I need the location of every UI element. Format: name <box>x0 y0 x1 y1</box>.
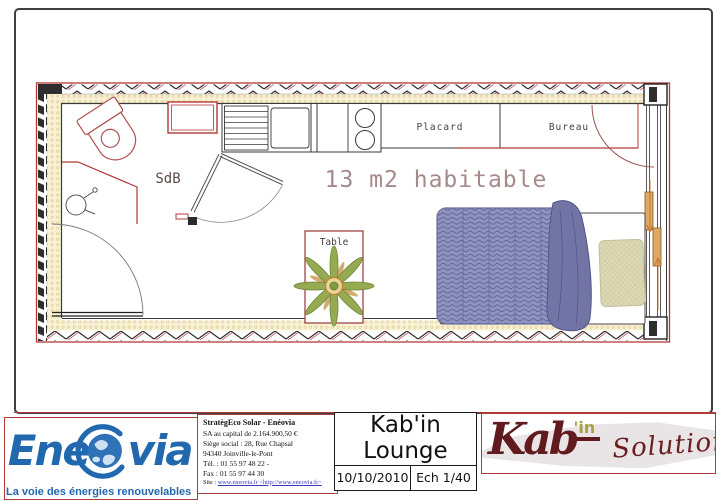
eneovia-logo-post: via <box>128 426 192 475</box>
site-label: Site : <box>203 479 218 486</box>
company-address2: 94340 Joinville-le-Pont <box>203 449 337 459</box>
project-title: Kab'in Lounge <box>335 413 476 465</box>
room-label-placard: Placard <box>416 122 463 133</box>
glazed-facade <box>644 84 667 341</box>
toilet <box>76 96 145 168</box>
wall-left <box>38 84 62 341</box>
project-title-box: Kab'in Lounge 10/10/2010 Ech 1/40 <box>334 412 477 491</box>
kabin-solutions-logo: Kab 'in Solutions <box>488 414 716 472</box>
room-label-bureau: Bureau <box>549 122 589 133</box>
hob-burner <box>356 109 375 128</box>
kabin-logo-in: 'in <box>573 418 601 441</box>
kabin-logo-solutions: Solutions <box>612 425 716 464</box>
company-info-box: StratègEco Solar - Enéovia SA au capital… <box>197 414 338 494</box>
hob-burner <box>356 131 375 150</box>
window-frame-post <box>645 192 653 230</box>
eneovia-tagline: La voie des énergies renouvelables <box>6 486 196 498</box>
bathroom-door <box>191 154 283 223</box>
plant <box>294 246 374 326</box>
bed <box>437 201 645 331</box>
project-title-line2: Lounge <box>363 439 447 465</box>
scale-value: Ech 1/40 <box>410 466 476 491</box>
kabin-solutions-logo-box: Kab 'in Solutions <box>481 413 716 474</box>
company-name: StratègEco Solar - Enéovia <box>203 418 337 429</box>
site-link[interactable]: www.eneovia.fr <http://www.eneovia.fr> <box>218 479 322 486</box>
door-stop <box>188 217 197 225</box>
drawing-sheet: Placard Bureau SdB <box>0 0 720 501</box>
eneovia-logo-box: Ene via La voie des énergies renouvelabl… <box>4 417 198 500</box>
company-capital: SA au capital de 2.164.900,50 € <box>203 429 337 439</box>
entry-door <box>52 224 143 316</box>
wall-top <box>38 84 645 104</box>
wall-stub <box>311 104 317 153</box>
kitchen-counter <box>222 104 381 153</box>
pillow <box>599 239 645 306</box>
glazed-door-swing-arc <box>592 105 654 167</box>
date-value: 10/10/2010 <box>335 466 410 491</box>
washbasin <box>66 188 97 215</box>
company-phone: Tél. : 01 55 97 48 22 - <box>203 459 337 469</box>
company-fax: Fax : 01 55 97 44 30 <box>203 469 337 479</box>
shower-tray <box>168 102 217 133</box>
floor-plan: Placard Bureau SdB <box>0 0 720 420</box>
room-label-sdb: SdB <box>155 171 180 187</box>
company-address1: Siège social : 28, Rue Chapsal <box>203 439 337 449</box>
area-label: 13 m2 habitable <box>325 167 548 193</box>
eneovia-logo: Ene via <box>6 419 196 479</box>
project-title-line1: Kab'in <box>370 413 441 439</box>
title-meta-row: 10/10/2010 Ech 1/40 <box>335 465 476 491</box>
kabin-logo-word: Kab <box>488 418 577 462</box>
company-site-line: Site : www.eneovia.fr <http://www.eneovi… <box>203 479 337 488</box>
kitchen-sink <box>271 108 309 148</box>
